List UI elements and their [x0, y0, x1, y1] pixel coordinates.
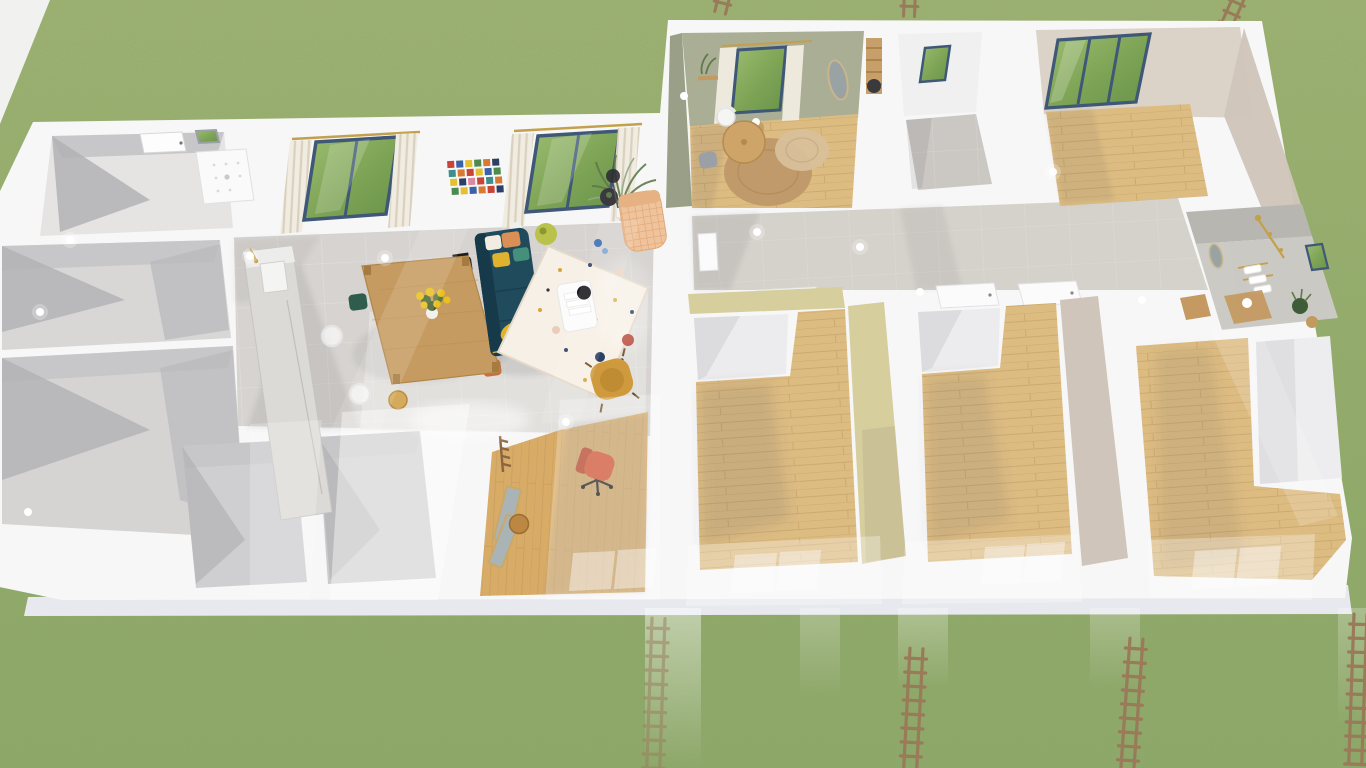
- bedroom1-window[interactable]: [1046, 34, 1150, 108]
- table-pedestal: [741, 139, 747, 145]
- shell-chair[interactable]: [717, 107, 735, 126]
- basin: [1242, 298, 1252, 308]
- dining-chair-wire-1[interactable]: [322, 326, 342, 346]
- cushion-orange: [501, 231, 521, 248]
- ladder-shelf[interactable]: [866, 38, 882, 94]
- dining-chair-green[interactable]: [348, 293, 368, 311]
- shower-tray[interactable]: [196, 149, 254, 204]
- wc-window[interactable]: [920, 46, 950, 82]
- kitchen-sink[interactable]: [260, 261, 288, 293]
- hall-door-west[interactable]: [698, 233, 718, 271]
- shower-drain: [224, 174, 229, 179]
- utility-window[interactable]: [196, 130, 219, 143]
- utility-room[interactable]: [40, 130, 254, 236]
- door-handle: [988, 293, 991, 296]
- hall-door-2[interactable]: [936, 283, 999, 308]
- cushion-white: [484, 235, 502, 251]
- door-handle: [179, 141, 182, 144]
- floorplan-render-stage: [0, 0, 1366, 768]
- cushion-yellow: [492, 252, 511, 268]
- green-vase[interactable]: [535, 223, 557, 245]
- window-glass[interactable]: [732, 47, 786, 113]
- entry-door[interactable]: [140, 132, 186, 153]
- green-vase-neck: [540, 228, 547, 235]
- side-table-plant: [606, 192, 612, 198]
- table-leg: [462, 257, 469, 266]
- floorplan-3d-view[interactable]: [0, 0, 1366, 768]
- cushion-green: [512, 247, 530, 262]
- jute-rug-small[interactable]: [775, 129, 829, 171]
- round-table[interactable]: [723, 121, 765, 163]
- storage-room-upper[interactable]: [2, 240, 231, 350]
- study[interactable]: [666, 31, 882, 208]
- stool[interactable]: [510, 515, 529, 534]
- basket[interactable]: [1306, 316, 1318, 328]
- door-handle: [1070, 291, 1073, 294]
- table-leg: [492, 362, 499, 372]
- dark-chair[interactable]: [867, 79, 881, 93]
- table-leg: [364, 266, 371, 275]
